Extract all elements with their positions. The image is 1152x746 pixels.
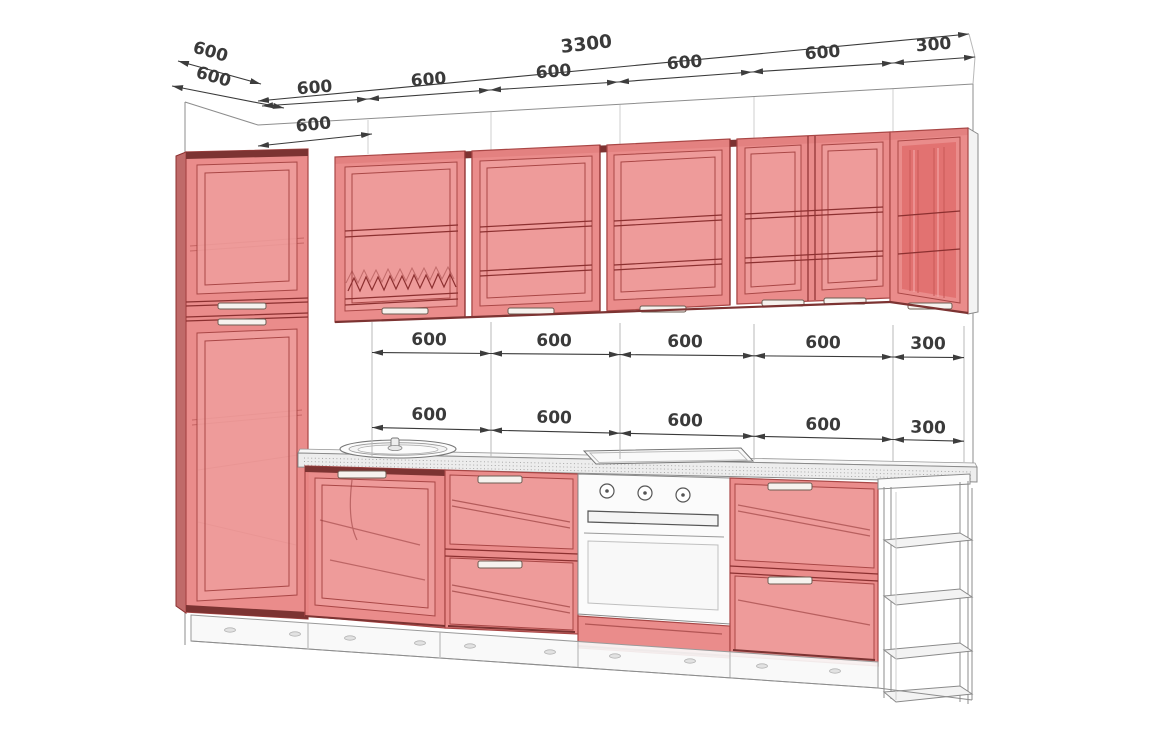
dim-label-upper-4: 600: [805, 333, 841, 353]
dim-label-lower-2: 600: [536, 408, 572, 429]
dim-seg: [893, 440, 964, 442]
dim-label-top-4: 600: [666, 52, 703, 75]
dim-seg: [372, 428, 491, 431]
wall-cabinet-2-handle: [508, 308, 554, 314]
sink-base-cabinet: [305, 466, 445, 628]
dim-label-top-6: 300: [915, 34, 952, 57]
drawer-1-top-front: [450, 475, 573, 549]
wall-divider-2: [600, 145, 607, 311]
sink-base-handle: [338, 471, 386, 478]
drawer-2-bottom-front: [735, 576, 874, 660]
dim-label-overall: 3300: [560, 31, 614, 58]
oven-knob-1-dot: [605, 489, 609, 493]
dim-seg: [754, 436, 893, 439]
dim-label-depth-2: 600: [194, 63, 234, 92]
dimension-tall-cabinet-width: 600: [258, 113, 372, 146]
tall-cabinet-lower-handle: [218, 319, 266, 325]
dim-seg: [491, 354, 620, 355]
dim-label-depth-1: 600: [191, 38, 231, 67]
oven-door: [588, 541, 718, 610]
dim-label-lower-5: 300: [910, 418, 946, 439]
dimension-row-lower: 600 600 600 600 300: [372, 405, 964, 442]
dimension-top-chain: 600 600 600 600 600 300: [262, 34, 975, 106]
dim-seg: [893, 57, 975, 63]
dim-label-lower-1: 600: [411, 405, 447, 426]
dim-line-tall-width: [258, 134, 372, 146]
wall-cabinet-3: [607, 139, 730, 312]
dim-label-upper-1: 600: [411, 330, 447, 350]
tall-cabinet-upper-handle: [218, 303, 266, 309]
sink: [340, 438, 456, 458]
dim-seg: [754, 356, 893, 357]
dim-label-top-3: 600: [535, 61, 572, 84]
dim-label-upper-2: 600: [536, 331, 572, 351]
dim-ext-3300-right: [969, 34, 975, 84]
drawer-base-cabinet-1: [445, 470, 578, 634]
oven-knob-3-dot: [681, 493, 685, 497]
wall-divider-3: [730, 139, 737, 305]
dim-seg: [368, 90, 490, 99]
wall-cabinet-2: [472, 145, 600, 317]
dim-seg: [490, 82, 618, 90]
dim-label-lower-3: 600: [667, 411, 703, 432]
dim-label-top-2: 600: [410, 69, 447, 92]
dim-seg: [618, 72, 752, 82]
tall-cabinet-lower-door: [197, 329, 297, 601]
dimension-row-upper: 600 600 600 600 300: [372, 330, 964, 358]
dim-label-upper-5: 300: [910, 334, 946, 354]
drawer-1-top-handle: [478, 476, 522, 483]
shelf-unit-shelf-1: [884, 533, 972, 548]
open-shelf-unit: [878, 474, 972, 704]
dim-seg: [262, 99, 368, 106]
wall-cabinet-1: [335, 151, 465, 322]
cooktop: [584, 448, 753, 464]
drawer-1-bottom-handle: [478, 561, 522, 568]
oven-housing: [578, 474, 730, 658]
shelf-unit-shelf-2: [884, 589, 972, 605]
wall-cabinet-4-right-door: [822, 142, 883, 290]
dimension-depth-left: 600 600: [172, 38, 284, 108]
tall-cabinet-upper-door: [197, 162, 297, 294]
drawer-2-top-front: [735, 484, 874, 568]
shelf-unit-shelf-3: [884, 643, 972, 659]
dim-seg: [491, 430, 620, 433]
dim-seg: [752, 63, 893, 72]
dim-label-tall-width: 600: [295, 113, 333, 137]
dim-label-top-1: 600: [296, 77, 333, 100]
dim-line-3300: [258, 34, 969, 101]
dim-seg: [893, 357, 964, 358]
drawing-canvas: 3300 600 600 600 600 600 300 600 600: [0, 0, 1152, 746]
wall-cabinet-1-handle: [382, 308, 428, 314]
base-cabinets: [191, 466, 972, 704]
glass-cabinet-side-panel: [968, 128, 978, 314]
dim-label-top-5: 600: [804, 42, 841, 65]
glass-wall-cabinet: [890, 128, 978, 314]
faucet-base: [388, 445, 402, 450]
oven-knob-2-dot: [643, 491, 647, 495]
drawer-2-bottom-handle: [768, 577, 812, 584]
dim-seg: [620, 433, 754, 436]
sink-base-door: [315, 478, 435, 616]
dim-label-upper-3: 600: [667, 332, 703, 352]
dim-seg: [620, 355, 754, 356]
dim-seg: [372, 353, 491, 354]
wall-cabinets: [335, 128, 978, 322]
kitchen-elevation-drawing: 3300 600 600 600 600 600 300 600 600: [0, 0, 1152, 746]
wall-divider-1: [465, 151, 472, 317]
wall-cabinet-4-left-door: [745, 145, 801, 294]
drawer-base-cabinet-2: [730, 478, 878, 666]
tall-cabinet: [176, 149, 308, 619]
drawer-2-top-handle: [768, 483, 812, 490]
dim-label-lower-4: 600: [805, 415, 841, 436]
wall-cabinet-4: [737, 132, 890, 306]
tall-cabinet-side-panel: [176, 152, 186, 613]
